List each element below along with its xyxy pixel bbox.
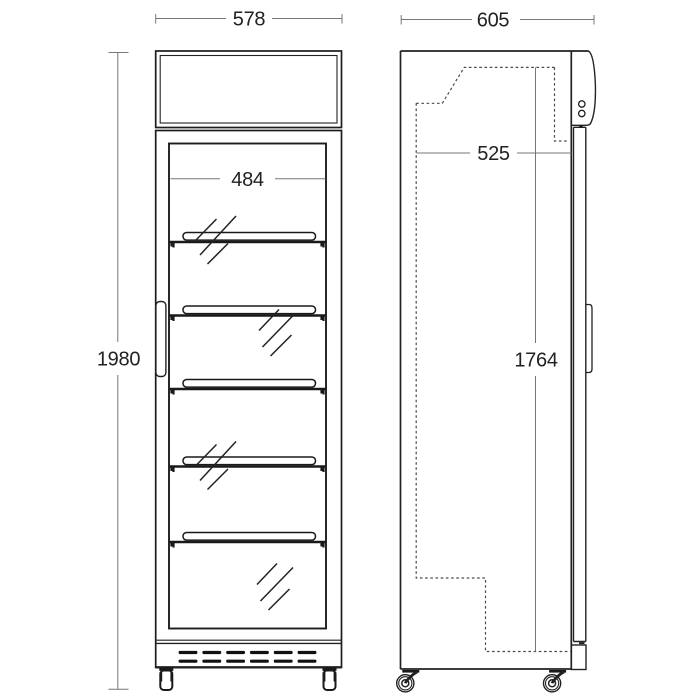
svg-text:578: 578 xyxy=(233,9,266,31)
svg-text:1980: 1980 xyxy=(97,349,140,371)
svg-text:1764: 1764 xyxy=(514,350,557,372)
svg-text:484: 484 xyxy=(231,169,264,191)
svg-text:605: 605 xyxy=(477,10,510,32)
svg-text:525: 525 xyxy=(477,143,510,165)
